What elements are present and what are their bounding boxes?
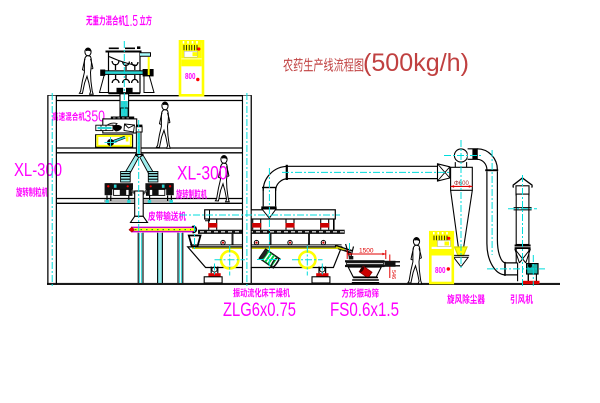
svg-text:1.5: 1.5 xyxy=(124,13,138,30)
svg-text:800: 800 xyxy=(435,265,446,275)
svg-text:800: 800 xyxy=(185,71,196,81)
svg-text:(500kg/h): (500kg/h) xyxy=(363,49,469,77)
svg-text:XL-300: XL-300 xyxy=(14,159,62,180)
svg-text:XL-300: XL-300 xyxy=(177,163,228,185)
svg-text:350: 350 xyxy=(85,109,106,126)
svg-text:546: 546 xyxy=(390,270,396,279)
svg-text:FS0.6x1.5: FS0.6x1.5 xyxy=(330,300,399,321)
svg-text:1500: 1500 xyxy=(359,248,374,255)
svg-text:ZLG6x0.75: ZLG6x0.75 xyxy=(223,300,296,321)
